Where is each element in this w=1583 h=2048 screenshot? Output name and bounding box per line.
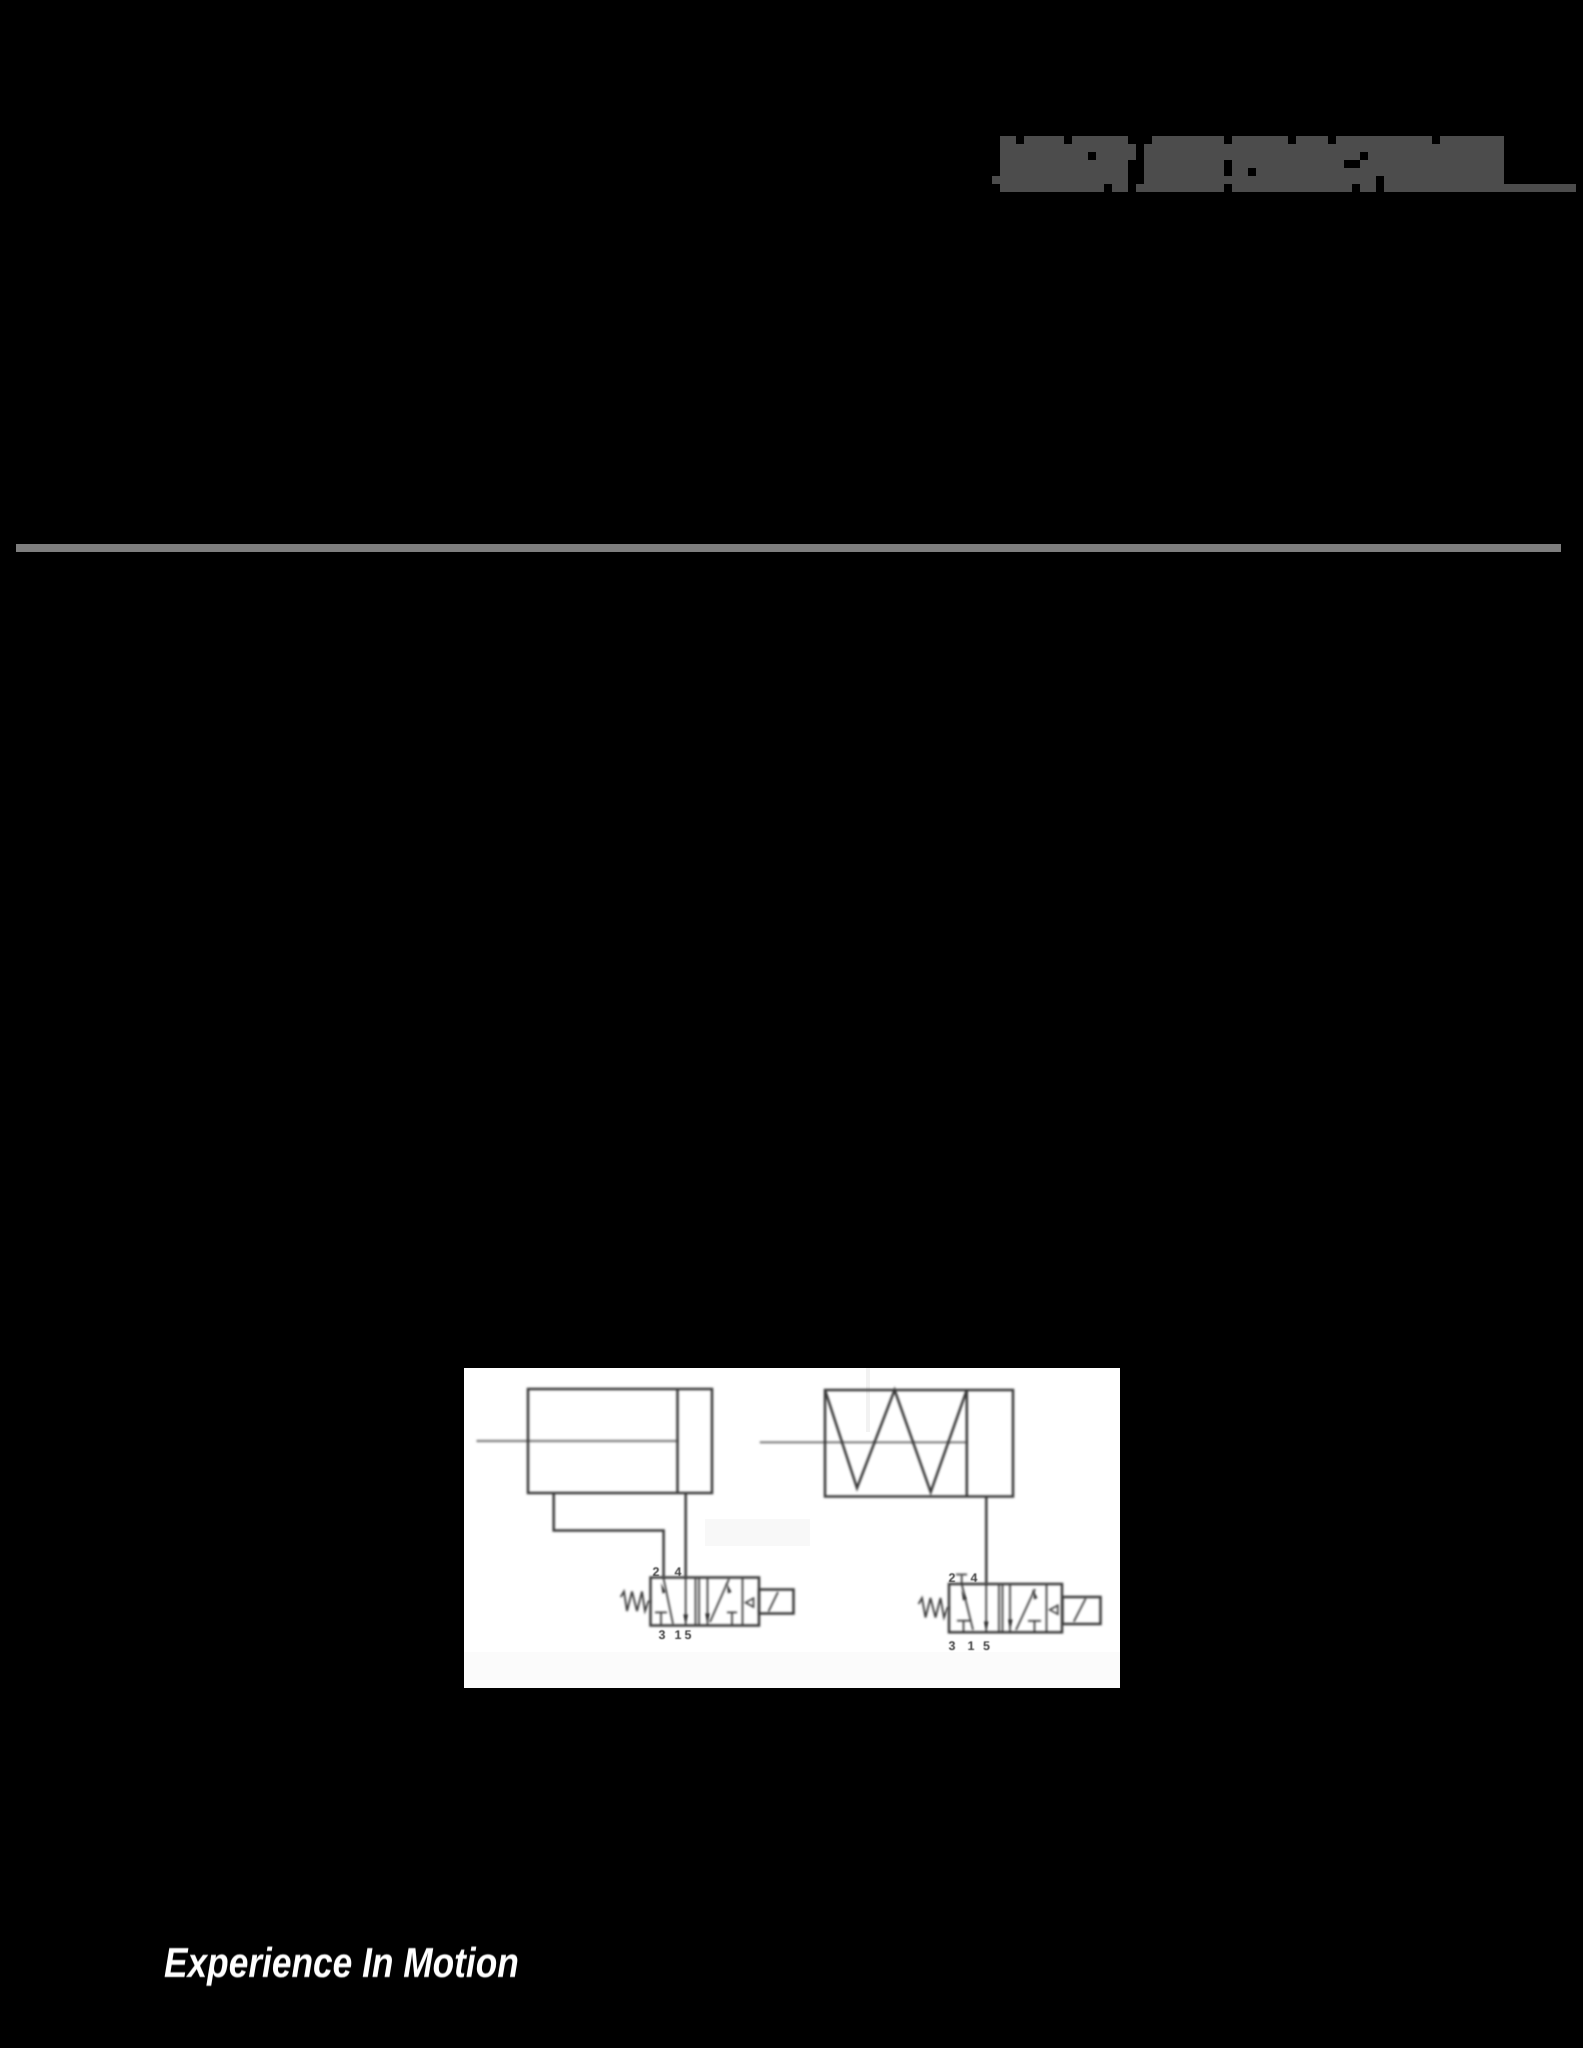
- svg-text:1: 1: [968, 1639, 975, 1653]
- svg-text:1: 1: [675, 1628, 682, 1642]
- svg-text:5: 5: [983, 1639, 990, 1653]
- svg-text:3: 3: [659, 1628, 666, 1642]
- svg-text:2: 2: [949, 1571, 956, 1585]
- svg-text:4: 4: [675, 1565, 682, 1579]
- svg-text:3: 3: [949, 1639, 956, 1653]
- svg-text:4: 4: [971, 1571, 978, 1585]
- svg-text:5: 5: [685, 1628, 692, 1642]
- svg-text:2: 2: [653, 1565, 660, 1579]
